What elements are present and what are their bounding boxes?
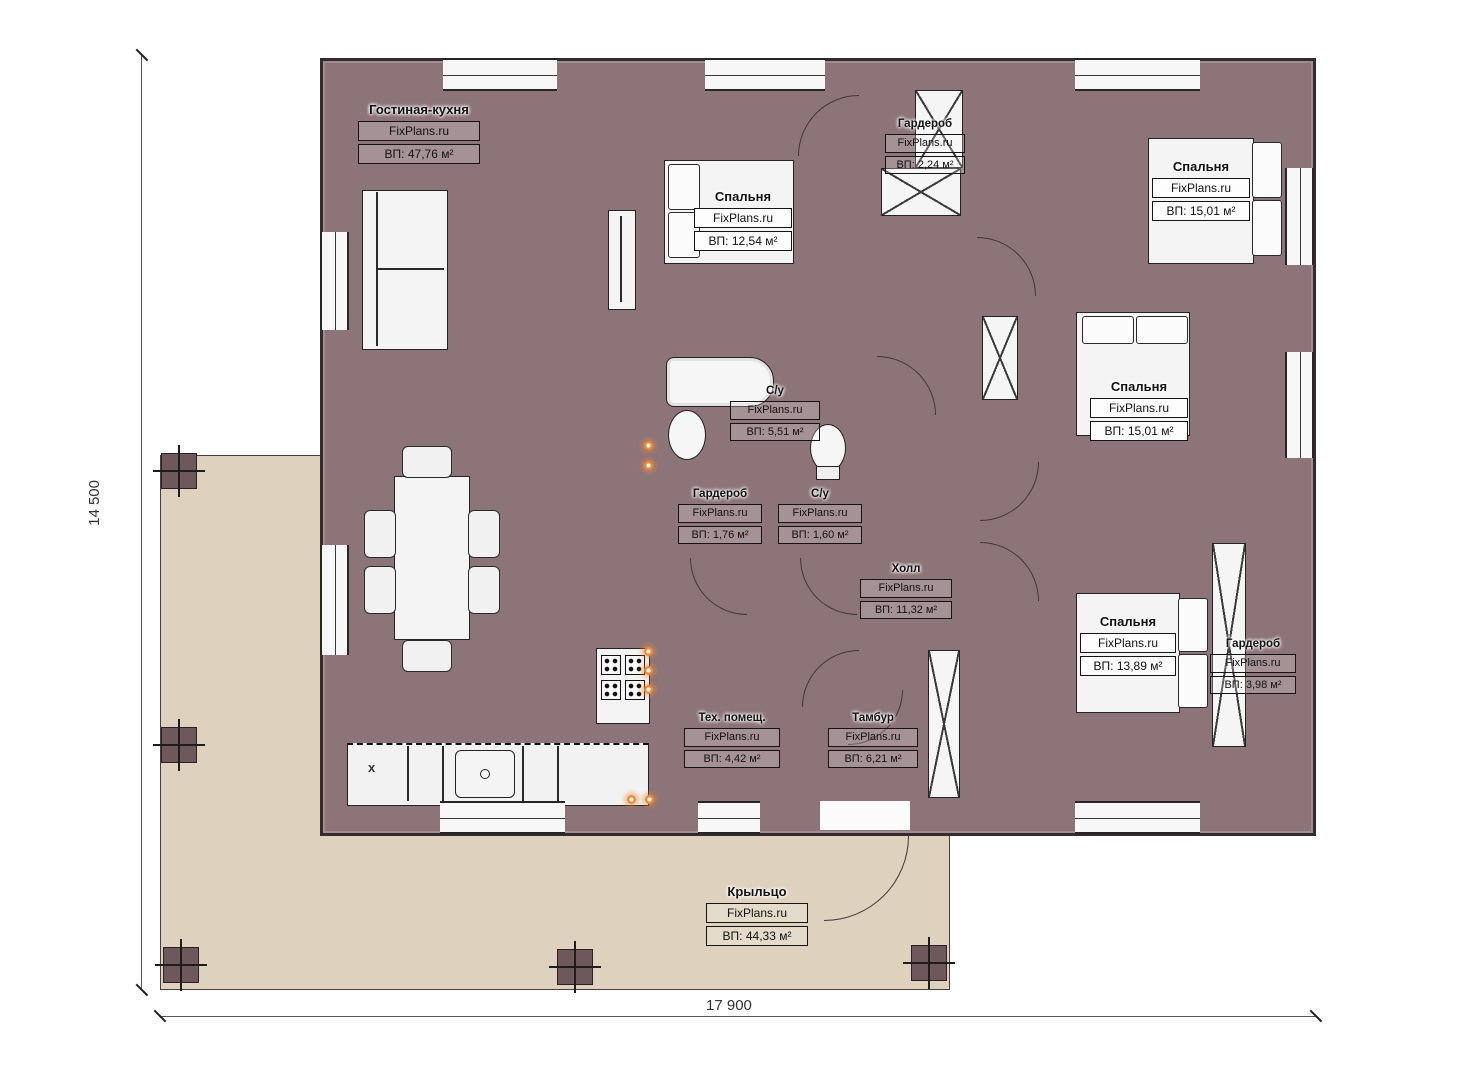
porch-column — [161, 727, 197, 763]
sink-drain — [480, 769, 490, 779]
sofa — [362, 190, 448, 350]
room-name: Гардероб — [885, 118, 965, 131]
brand-watermark: FixPlans.ru — [1080, 633, 1176, 653]
brand-watermark: FixPlans.ru — [778, 504, 862, 523]
window — [1285, 168, 1314, 265]
bed-pillow — [1252, 142, 1282, 198]
wardrobe-unit — [881, 168, 961, 216]
room-area: ВП: 2,24 м² — [885, 156, 965, 175]
room-area: ВП: 15,01 м² — [1090, 421, 1188, 441]
chair — [364, 510, 396, 558]
window — [705, 58, 825, 91]
dimension-height-label: 14 500 — [86, 480, 103, 526]
wall-light-dot — [645, 795, 654, 804]
room-area: ВП: 5,51 м² — [730, 423, 820, 442]
room-label-tambour: Тамбур FixPlans.ru ВП: 6,21 м² — [828, 712, 918, 768]
room-area: ВП: 15,01 м² — [1152, 201, 1250, 221]
wall-light-dot — [644, 685, 653, 694]
bed-pillow — [1178, 654, 1208, 708]
sofa-cushion-line — [378, 268, 444, 270]
room-area: ВП: 3,98 м² — [1210, 676, 1296, 695]
brand-watermark: FixPlans.ru — [828, 728, 918, 747]
window — [1075, 58, 1200, 91]
wardrobe-unit — [982, 316, 1018, 400]
stove-burner — [601, 680, 621, 700]
bed-pillow — [1252, 200, 1282, 256]
brand-watermark: FixPlans.ru — [706, 903, 808, 923]
chair — [468, 510, 500, 558]
room-label-porch: Крыльцо FixPlans.ru ВП: 44,33 м² — [706, 885, 808, 946]
room-area: ВП: 13,89 м² — [1080, 656, 1176, 676]
brand-watermark: FixPlans.ru — [694, 208, 792, 228]
chair — [402, 446, 452, 478]
wall-light-dot — [644, 461, 653, 470]
window — [440, 801, 565, 834]
brand-watermark: FixPlans.ru — [1090, 398, 1188, 418]
room-name: Спальня — [1080, 615, 1176, 630]
room-name: С/у — [778, 488, 862, 501]
tv-stand — [608, 210, 636, 310]
counter-divider — [407, 746, 409, 801]
brand-watermark: FixPlans.ru — [730, 401, 820, 420]
window — [320, 545, 349, 655]
room-area: ВП: 44,33 м² — [706, 926, 808, 946]
stove-burner — [625, 655, 645, 675]
room-name: Гостиная-кухня — [358, 103, 480, 118]
porch-column — [163, 947, 199, 983]
room-label-wardrobe-top: Гардероб FixPlans.ru ВП: 2,24 м² — [885, 118, 965, 174]
room-label-bathroom-main: С/у FixPlans.ru ВП: 5,51 м² — [730, 385, 820, 441]
room-name: Гардероб — [678, 488, 762, 501]
room-label-wardrobe-middle: Гардероб FixPlans.ru ВП: 1,76 м² — [678, 488, 762, 544]
window — [320, 232, 349, 330]
window — [698, 801, 760, 834]
brand-watermark: FixPlans.ru — [678, 504, 762, 523]
wall-light-dot — [627, 795, 636, 804]
room-name: Тех. помещ. — [684, 712, 780, 725]
dimension-width-label: 17 900 — [706, 997, 752, 1014]
wall-light-dot — [644, 647, 653, 656]
toilet-tank — [816, 466, 840, 480]
room-label-bedroom-right-bottom: Спальня FixPlans.ru ВП: 13,89 м² — [1080, 615, 1176, 676]
window — [1075, 801, 1200, 834]
room-name: Гардероб — [1210, 638, 1296, 651]
dimension-line-left — [141, 55, 142, 990]
room-label-bedroom-right-top: Спальня FixPlans.ru ВП: 15,01 м² — [1152, 160, 1250, 221]
brand-watermark: FixPlans.ru — [1210, 654, 1296, 673]
counter-divider — [557, 746, 559, 801]
tv-line — [620, 216, 622, 302]
brand-watermark: FixPlans.ru — [684, 728, 780, 747]
room-label-bedroom-right-middle: Спальня FixPlans.ru ВП: 15,01 м² — [1090, 380, 1188, 441]
floor-plan-canvas: 14 500 17 900 — [0, 0, 1473, 1080]
counter-divider — [442, 746, 444, 801]
dimension-line-bottom — [160, 1016, 1316, 1017]
porch-column — [557, 949, 593, 985]
room-label-bathroom-small: С/у FixPlans.ru ВП: 1,60 м² — [778, 488, 862, 544]
room-label-tech: Тех. помещ. FixPlans.ru ВП: 4,42 м² — [684, 712, 780, 768]
room-name: Спальня — [1152, 160, 1250, 175]
room-area: ВП: 47,76 м² — [358, 144, 480, 164]
room-area: ВП: 12,54 м² — [694, 231, 792, 251]
room-area: ВП: 11,32 м² — [860, 601, 952, 620]
brand-watermark: FixPlans.ru — [885, 134, 965, 153]
room-name: Тамбур — [828, 712, 918, 725]
wardrobe-unit — [928, 650, 960, 798]
brand-watermark: FixPlans.ru — [860, 579, 952, 598]
wall-light-dot — [644, 666, 653, 675]
room-label-living: Гостиная-кухня FixPlans.ru ВП: 47,76 м² — [358, 103, 480, 164]
room-name: Крыльцо — [706, 885, 808, 900]
room-name: Холл — [860, 563, 952, 576]
entrance-door-opening — [820, 801, 910, 830]
room-name: Спальня — [1090, 380, 1188, 395]
porch-column — [911, 945, 947, 981]
window — [1285, 352, 1314, 458]
room-label-wardrobe-right: Гардероб FixPlans.ru ВП: 3,98 м² — [1210, 638, 1296, 694]
porch-column — [161, 453, 197, 489]
room-label-hall: Холл FixPlans.ru ВП: 11,32 м² — [860, 563, 952, 619]
brand-watermark: FixPlans.ru — [358, 121, 480, 141]
room-area: ВП: 1,60 м² — [778, 526, 862, 545]
counter-divider — [522, 746, 524, 801]
room-name: Спальня — [694, 190, 792, 205]
brand-watermark: FixPlans.ru — [1152, 178, 1250, 198]
stove-burner — [601, 655, 621, 675]
bed-pillow — [1082, 316, 1134, 344]
kitchen-hob-mark: х — [368, 760, 375, 775]
dining-table — [394, 476, 470, 640]
bed-pillow — [1136, 316, 1188, 344]
room-label-bedroom-top: Спальня FixPlans.ru ВП: 12,54 м² — [694, 190, 792, 251]
chair — [364, 566, 396, 614]
room-area: ВП: 6,21 м² — [828, 750, 918, 769]
wall-light-dot — [644, 441, 653, 450]
window — [443, 58, 557, 91]
room-area: ВП: 1,76 м² — [678, 526, 762, 545]
stove-burner — [625, 680, 645, 700]
bath-sink — [668, 410, 706, 460]
chair — [402, 640, 452, 672]
room-name: С/у — [730, 385, 820, 398]
room-area: ВП: 4,42 м² — [684, 750, 780, 769]
chair — [468, 566, 500, 614]
bed-pillow — [1178, 598, 1208, 652]
